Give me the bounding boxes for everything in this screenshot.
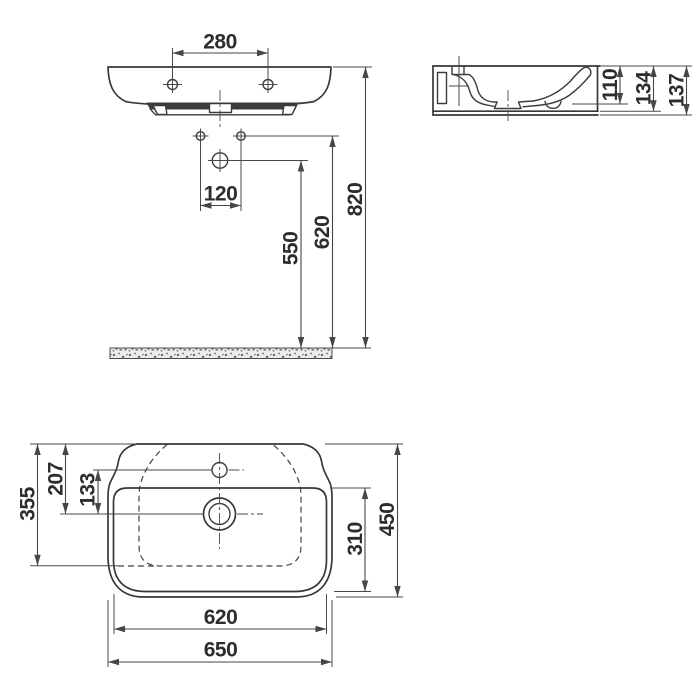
side-drain-section [495, 101, 534, 109]
side-view: 110 134 137 [433, 56, 692, 122]
front-fixing-hole-left [193, 129, 209, 144]
dimension-label-650: 650 [204, 639, 238, 662]
side-mounting-notch [452, 66, 464, 75]
dimension-label-207: 207 [45, 462, 68, 496]
plan-view: 355 207 133 310 450 620 650 [17, 444, 404, 667]
front-basin-outline [108, 67, 331, 106]
side-wall-bracket-slot [438, 73, 447, 104]
front-overflow-hole [210, 104, 232, 113]
dimension-label-820: 820 [344, 183, 367, 217]
side-bowl-front-wall-outer [523, 75, 590, 107]
front-foot-right [283, 106, 297, 115]
washbasin-technical-drawing: 280 120 550 620 820 [0, 0, 700, 700]
dimension-label-280: 280 [203, 31, 237, 54]
dimension-label-133: 133 [77, 473, 100, 507]
dimension-label-550: 550 [280, 232, 303, 266]
front-mounting-hole-right [259, 76, 278, 93]
dimension-label-310: 310 [344, 522, 367, 556]
dimension-label-620v: 620 [311, 216, 334, 250]
floor-hatch [110, 348, 332, 359]
dimension-label-134: 134 [633, 71, 656, 105]
dimension-label-120: 120 [204, 183, 238, 206]
front-view: 280 120 550 620 820 [108, 31, 372, 359]
dimension-label-620: 620 [204, 606, 238, 629]
side-bowl-front-wall-inner [533, 68, 584, 101]
dimension-label-450: 450 [376, 503, 399, 537]
front-drain-hole [208, 149, 232, 172]
plan-outer-outline [108, 444, 332, 597]
dimension-label-355: 355 [17, 486, 40, 520]
dimension-label-110: 110 [599, 69, 622, 101]
side-rim-cap [584, 67, 591, 75]
dimension-label-137: 137 [666, 74, 689, 108]
drawing-canvas: 280 120 550 620 820 [0, 0, 700, 700]
front-mounting-hole-left [163, 76, 182, 93]
